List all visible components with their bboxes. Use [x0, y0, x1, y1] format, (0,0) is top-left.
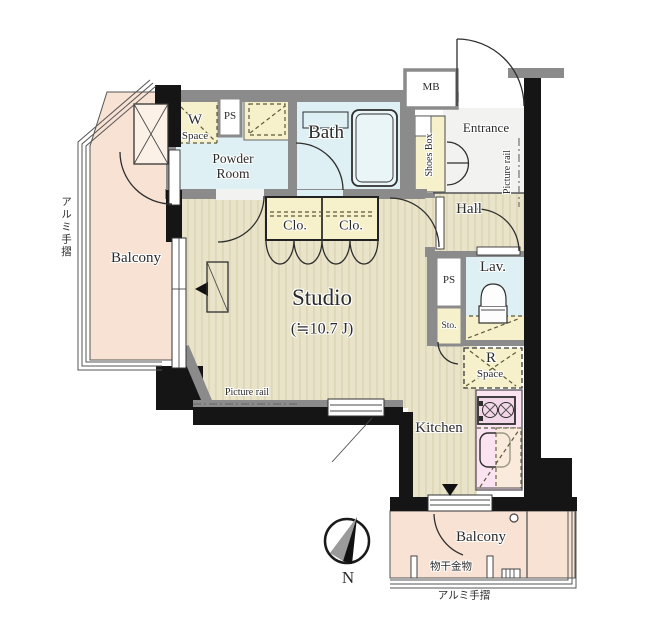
studio-label: Studio — [292, 286, 352, 310]
toilet-tank — [479, 306, 507, 323]
ps-top-label: PS — [224, 111, 236, 123]
balcony-door-leaf — [169, 150, 180, 205]
balcony-left-label: Balcony — [111, 251, 161, 267]
w-space-word: Space — [182, 131, 208, 143]
studio-bottom-window — [328, 399, 384, 416]
picture-rail-entrance-label: Picture rail — [503, 150, 514, 194]
balcony-bottom-label: Balcony — [456, 530, 506, 546]
compass — [325, 517, 369, 564]
bath-label: Bath — [308, 123, 344, 143]
ps-hall-label: PS — [443, 275, 455, 287]
r-space-letter: R — [486, 351, 496, 367]
powder-room-line1: Powder — [212, 152, 253, 166]
entrance-label: Entrance — [463, 121, 509, 135]
toilet-bowl — [481, 284, 506, 306]
lav-door-leaf — [477, 247, 520, 255]
handrail-left-label: アルミ手摺 — [58, 196, 73, 259]
laundry-bracket-left — [411, 556, 417, 578]
laundry-hardware-label: 物干金物 — [430, 561, 472, 572]
stove — [478, 397, 515, 424]
lav-label: Lav. — [480, 260, 506, 276]
compass-north-label: N — [342, 569, 354, 587]
picture-rail-studio-label: Picture rail — [225, 388, 269, 399]
hatch — [502, 569, 520, 578]
r-space-word: Space — [477, 369, 503, 381]
hall-door-leaf — [436, 197, 444, 249]
closet-left-label: Clo. — [283, 220, 307, 235]
shoes-box-label: Shoes Box — [425, 133, 436, 176]
laundry-bracket-right — [487, 556, 493, 578]
drain — [510, 514, 518, 522]
floor-plan: Balcony アルミ手摺 W Space PS Powder Room Bat… — [0, 0, 651, 644]
kitchen-counter — [476, 390, 522, 490]
w-space-letter: W — [188, 113, 202, 129]
sto-label: Sto. — [441, 322, 456, 332]
powder-room-line2: Room — [216, 167, 249, 181]
mb-label: MB — [422, 82, 439, 94]
studio-size-label: (≒10.7 J) — [291, 322, 353, 339]
kitchen-label: Kitchen — [415, 421, 462, 437]
bathtub — [352, 110, 397, 186]
kitchen-balcony-door — [428, 495, 492, 511]
handrail-bottom-label: アルミ手摺 — [438, 590, 490, 601]
hall-label: Hall — [456, 202, 482, 218]
closet-right-label: Clo. — [339, 220, 363, 235]
